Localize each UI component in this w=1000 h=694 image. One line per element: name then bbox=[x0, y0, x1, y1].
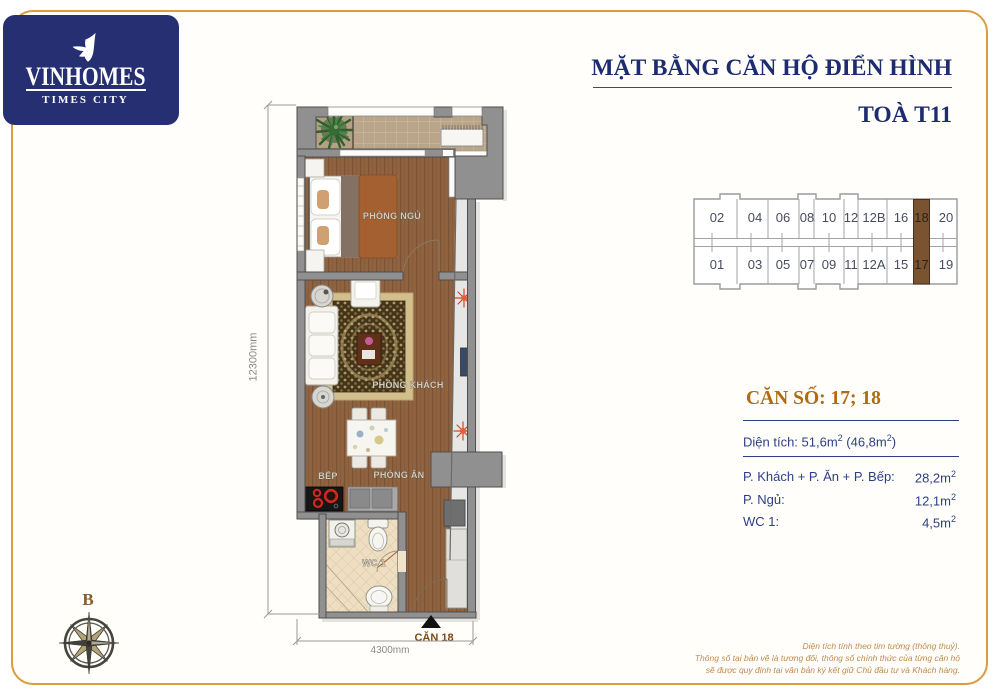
svg-text:12A: 12A bbox=[862, 257, 885, 272]
svg-text:12300mm: 12300mm bbox=[248, 333, 260, 382]
svg-text:02: 02 bbox=[710, 210, 724, 225]
svg-text:06: 06 bbox=[776, 210, 790, 225]
svg-text:01: 01 bbox=[710, 257, 724, 272]
svg-text:20: 20 bbox=[939, 210, 953, 225]
svg-text:BẾP: BẾP bbox=[318, 471, 337, 481]
svg-text:08: 08 bbox=[800, 210, 814, 225]
svg-text:15: 15 bbox=[894, 257, 908, 272]
svg-text:PHÒNG KHÁCH: PHÒNG KHÁCH bbox=[372, 379, 443, 390]
svg-text:PHÒNG ĂN: PHÒNG ĂN bbox=[374, 469, 425, 480]
svg-text:19: 19 bbox=[939, 257, 953, 272]
svg-text:11: 11 bbox=[844, 257, 858, 272]
svg-text:05: 05 bbox=[776, 257, 790, 272]
svg-text:12: 12 bbox=[844, 210, 858, 225]
svg-text:WC 1: WC 1 bbox=[362, 558, 386, 568]
svg-text:03: 03 bbox=[748, 257, 762, 272]
svg-text:PHÒNG NGỦ: PHÒNG NGỦ bbox=[363, 210, 421, 221]
svg-text:4300mm: 4300mm bbox=[371, 645, 410, 656]
svg-text:10: 10 bbox=[822, 210, 836, 225]
svg-text:17: 17 bbox=[914, 257, 928, 272]
svg-text:CĂN 18: CĂN 18 bbox=[414, 631, 453, 644]
svg-text:09: 09 bbox=[822, 257, 836, 272]
svg-text:12B: 12B bbox=[862, 210, 885, 225]
svg-text:04: 04 bbox=[748, 210, 762, 225]
svg-text:07: 07 bbox=[800, 257, 814, 272]
svg-text:16: 16 bbox=[894, 210, 908, 225]
svg-text:18: 18 bbox=[914, 210, 928, 225]
